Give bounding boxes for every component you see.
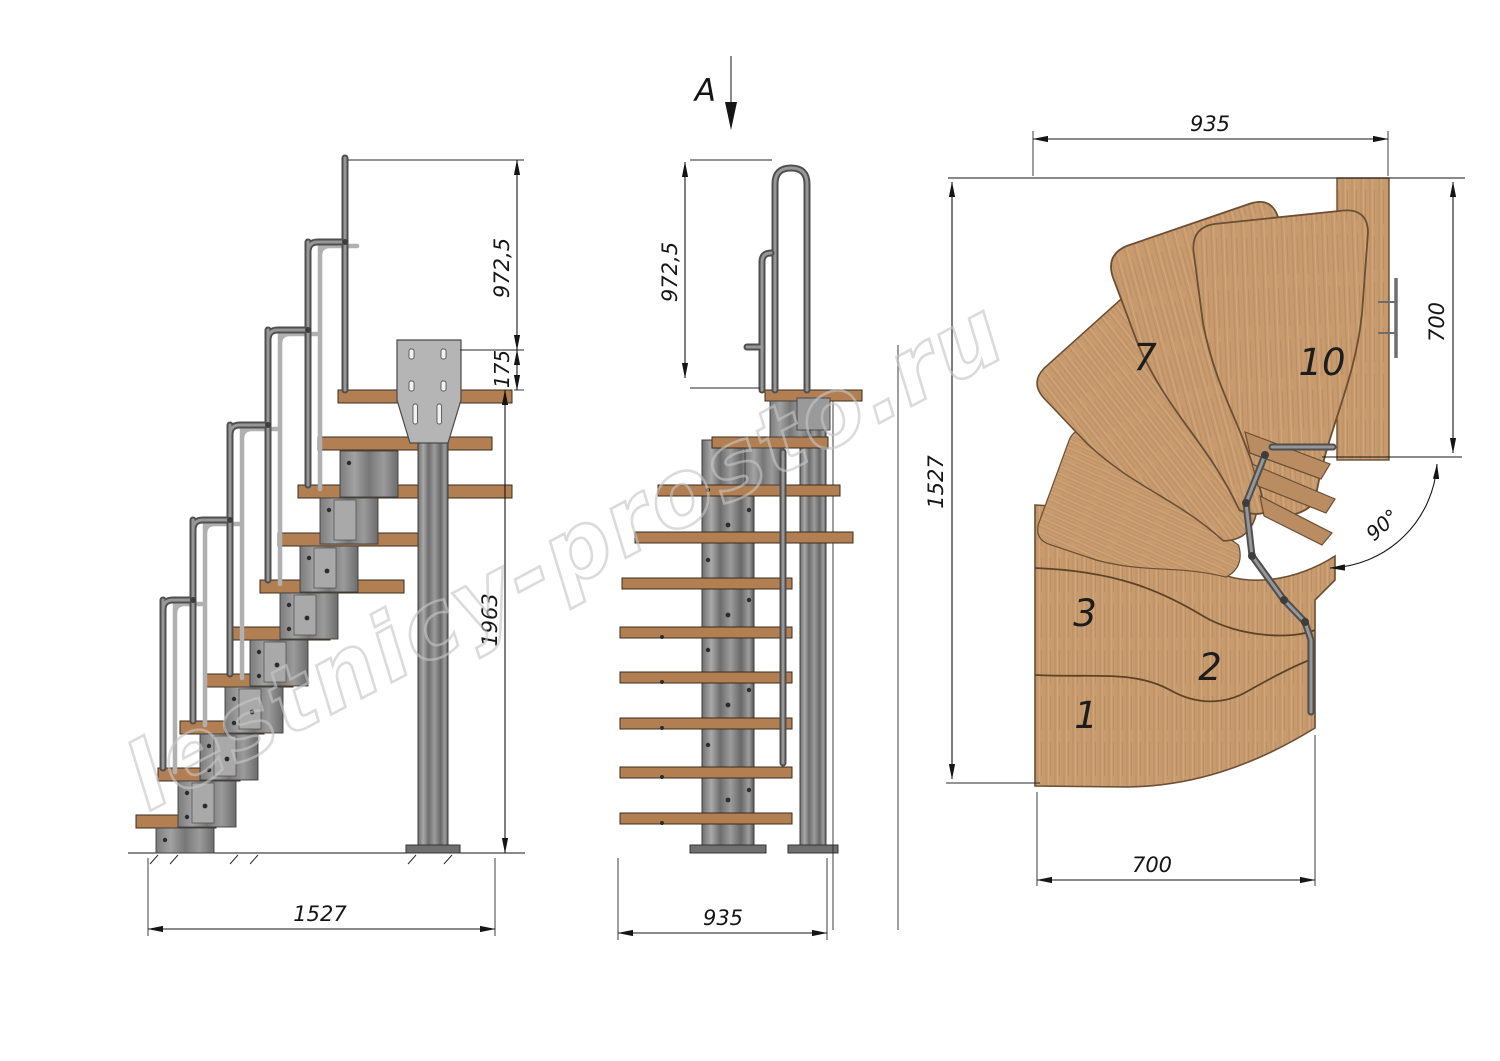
- ground-hatch: [150, 855, 452, 864]
- dim-front-width: 935: [703, 906, 743, 930]
- dim-plan-bottom-width: 700: [1132, 853, 1172, 877]
- section-arrow: [725, 102, 737, 130]
- plan-view: 1 2 3 7 10: [924, 112, 1465, 886]
- dim-plan-right-depth: 700: [1425, 302, 1449, 342]
- dim-side-total-run: 1527: [293, 902, 347, 926]
- front-right-flange: [788, 845, 838, 853]
- tread-number-10: 10: [1298, 341, 1345, 384]
- mounting-plate: [397, 340, 461, 443]
- tread-number-3: 3: [1073, 592, 1097, 635]
- dim-side-handrail-height: 972,5: [490, 238, 514, 298]
- drawing-canvas: 972,5 175 1963 1527 A: [0, 0, 1500, 1061]
- dim-front-handrail-height: 972,5: [658, 242, 682, 302]
- section-label: A: [693, 73, 716, 109]
- staircase-drawing: 972,5 175 1963 1527 A: [0, 0, 1500, 1061]
- dim-plan-top-width: 935: [1190, 112, 1230, 136]
- front-central-flange: [690, 845, 766, 853]
- dim-plan-angle: 90°: [1361, 504, 1403, 546]
- tread-number-7: 7: [1133, 336, 1157, 379]
- watermark-text: lestnicy-prosto.ru: [108, 278, 1022, 832]
- dim-side-support-offset: 175: [490, 350, 514, 388]
- section-marker: A: [693, 56, 737, 130]
- column-base-flange: [406, 845, 460, 853]
- tread-number-2: 2: [1198, 646, 1222, 689]
- dim-plan-left-depth: 1527: [924, 455, 948, 509]
- tread-number-1: 1: [1074, 694, 1098, 737]
